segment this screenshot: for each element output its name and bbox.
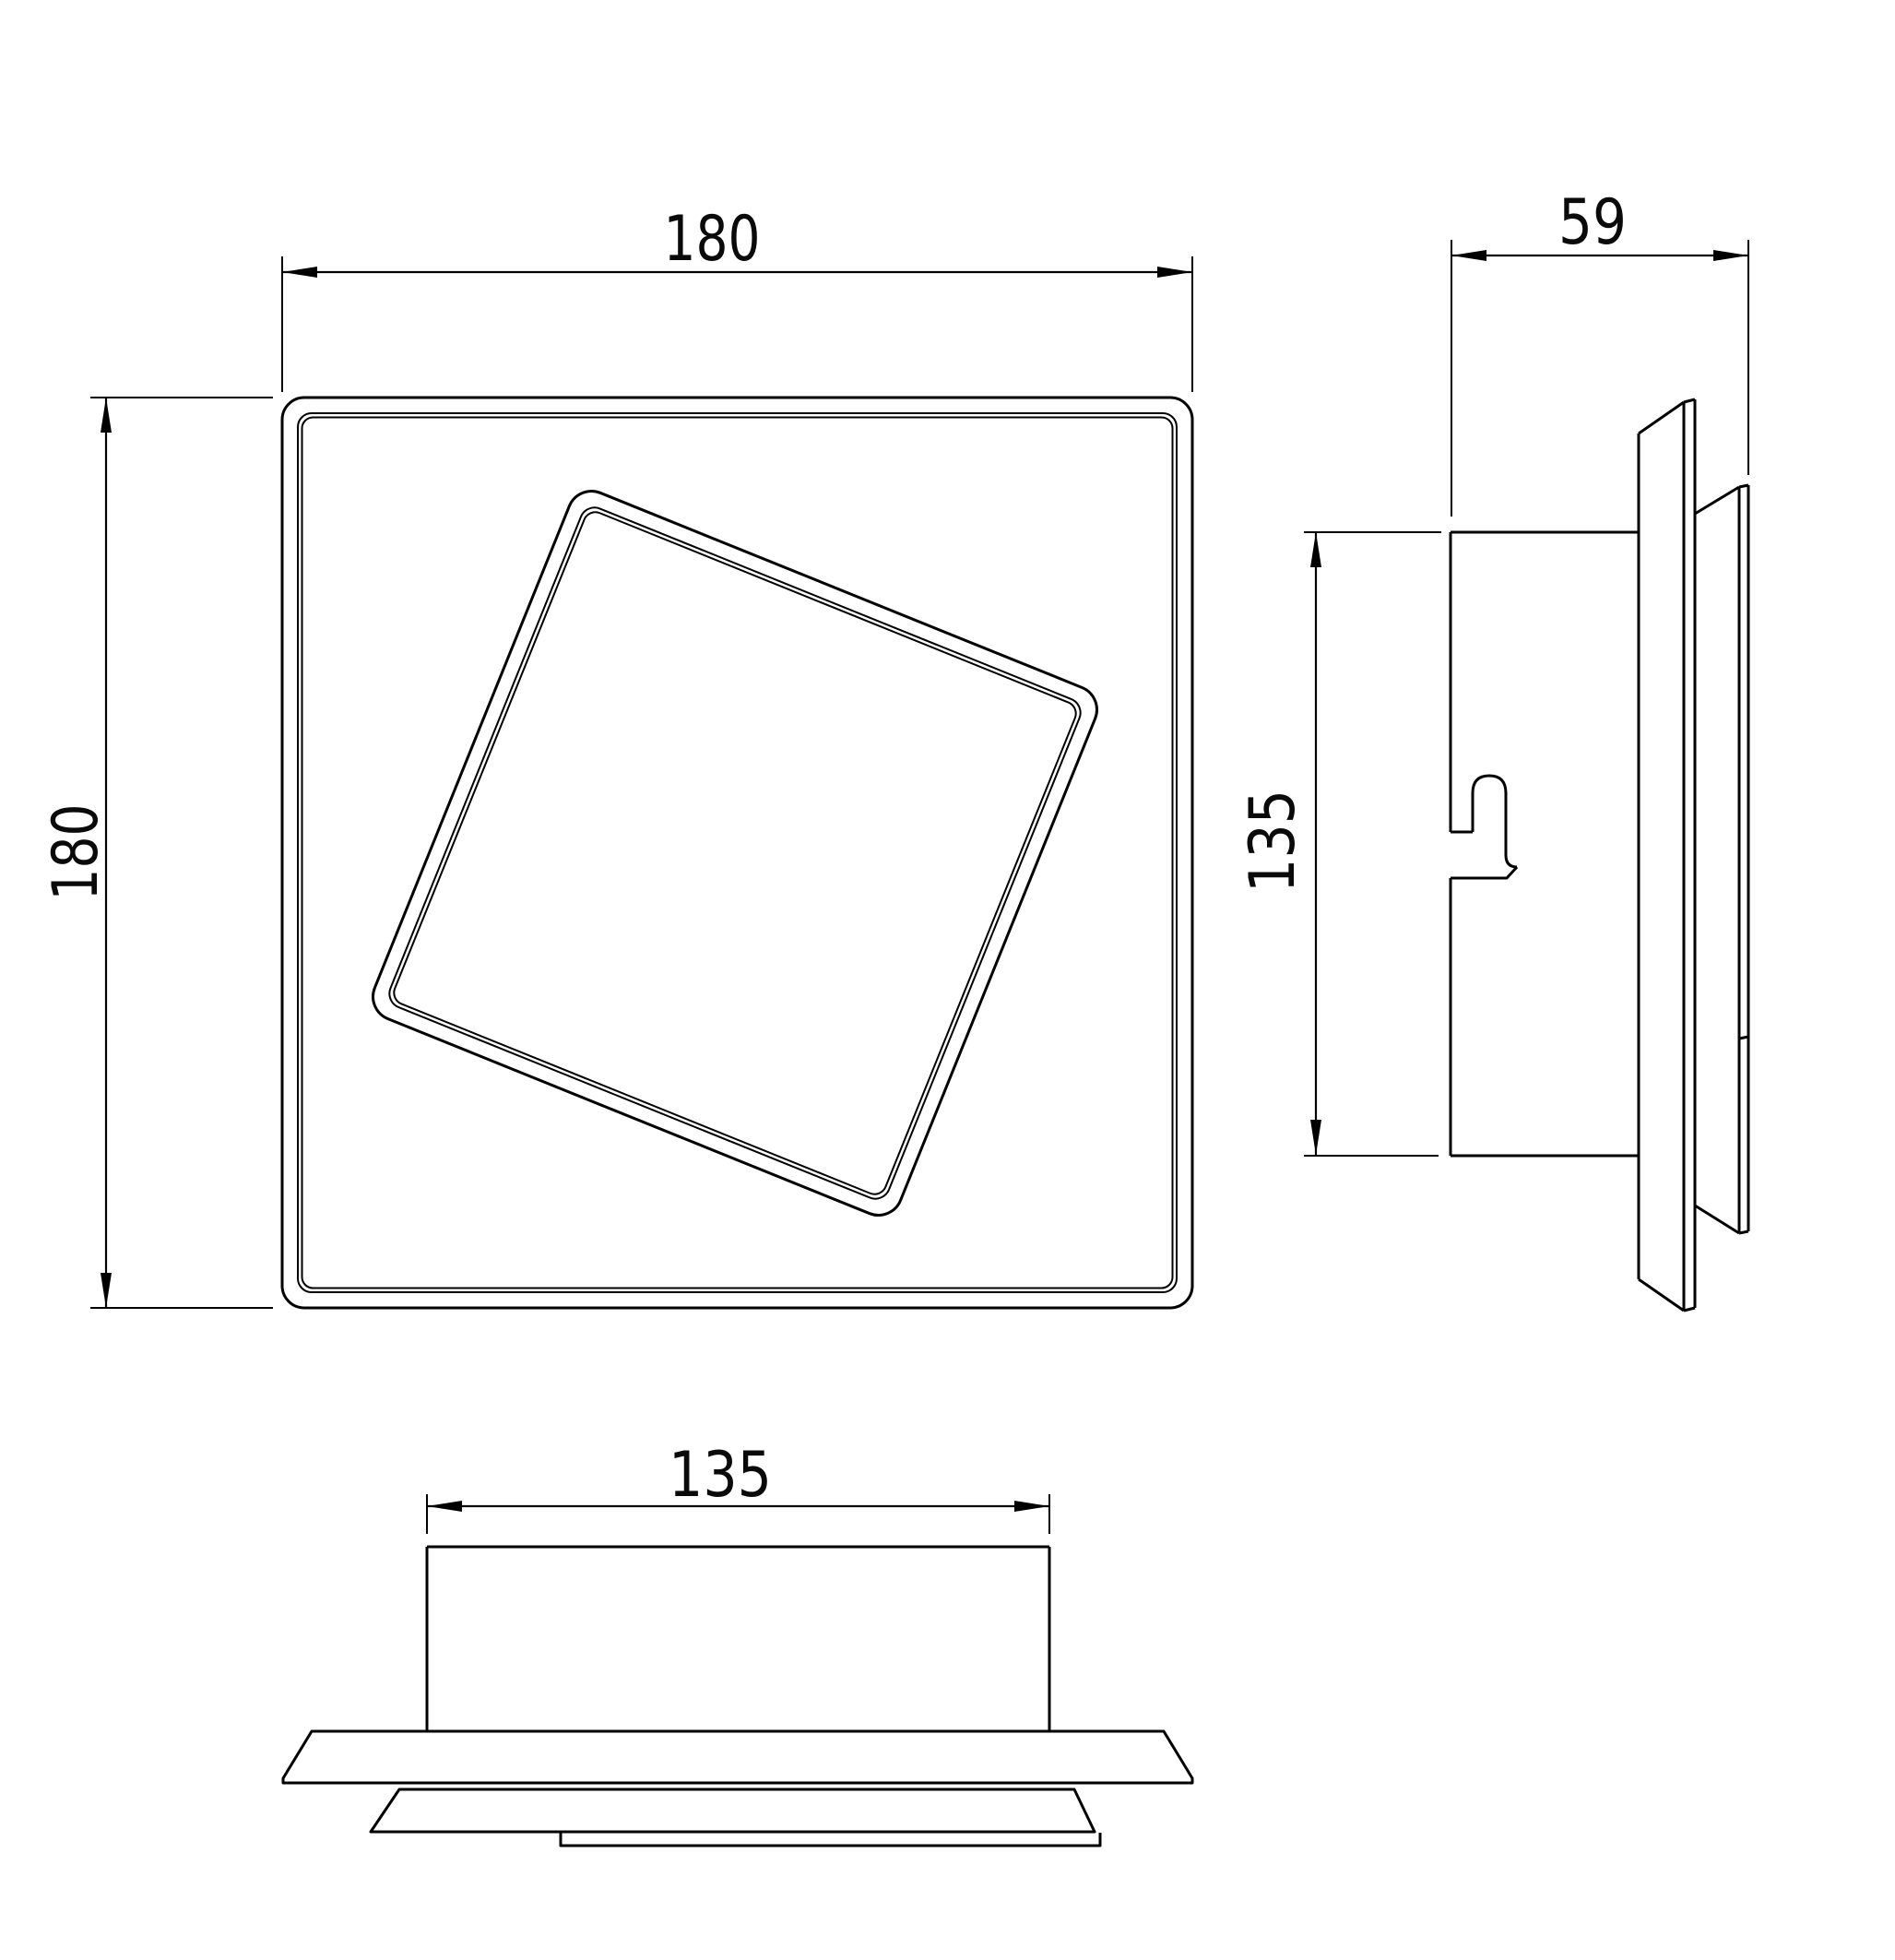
front-outer-frame [282,398,1192,1308]
technical-drawing-canvas: 180 180 [0,0,1895,1960]
side-frame-top-slant [1639,402,1684,434]
dim-front-height-arrow-bottom [101,1273,112,1308]
side-frame-bottom-slant [1639,1279,1684,1311]
dim-front-height-arrow-top [101,398,112,433]
bottom-frame-plate [283,1731,1192,1783]
dim-bottom-width-arrow-left [427,1501,462,1512]
side-panel-bottom-cap [1739,1231,1748,1233]
front-view [282,398,1192,1308]
dim-side-height: 135 [1237,532,1441,1156]
side-panel-bottom-slant [1695,1206,1739,1233]
dim-front-height-label: 180 [40,804,113,901]
side-frame-top-cap [1684,399,1695,402]
dim-bottom-width-arrow-right [1014,1501,1049,1512]
side-view [1451,399,1748,1311]
rotated-panel [366,484,1105,1223]
rotated-panel-inner-line-1 [385,504,1085,1204]
dim-side-depth-arrow-left [1451,250,1486,261]
dim-front-width-arrow-right [1157,267,1192,278]
dim-bottom-width: 135 [427,1439,1049,1534]
side-hook-profile [1473,776,1517,867]
dim-side-height-label: 135 [1237,790,1309,893]
bottom-view [283,1547,1192,1846]
dim-side-height-arrow-bottom [1310,1120,1321,1155]
dim-side-depth-label: 59 [1558,186,1627,259]
side-frame-bottom-cap [1684,1308,1695,1311]
side-panel-top-slant [1695,487,1739,514]
dim-front-width-arrow-left [282,267,317,278]
drawing-sheet: 180 180 [0,0,1895,1960]
side-panel-top-cap [1739,485,1748,487]
dim-side-depth: 59 [1451,186,1748,517]
dim-side-depth-arrow-right [1713,250,1748,261]
bottom-rotated-plate [371,1789,1095,1832]
dim-front-width-label: 180 [664,203,761,276]
rotated-panel-inner-line-2 [390,508,1079,1197]
dim-side-height-arrow-top [1310,532,1321,567]
bottom-rotated-plate-step-edge [561,1832,1100,1846]
side-hook-slot-bottom-lip [1451,867,1517,878]
rotated-panel-outer-edge [366,484,1105,1223]
dim-front-height: 180 [40,398,273,1308]
side-panel-seam [1739,1037,1748,1039]
dim-front-width: 180 [282,203,1192,392]
dim-bottom-width-label: 135 [669,1439,772,1512]
